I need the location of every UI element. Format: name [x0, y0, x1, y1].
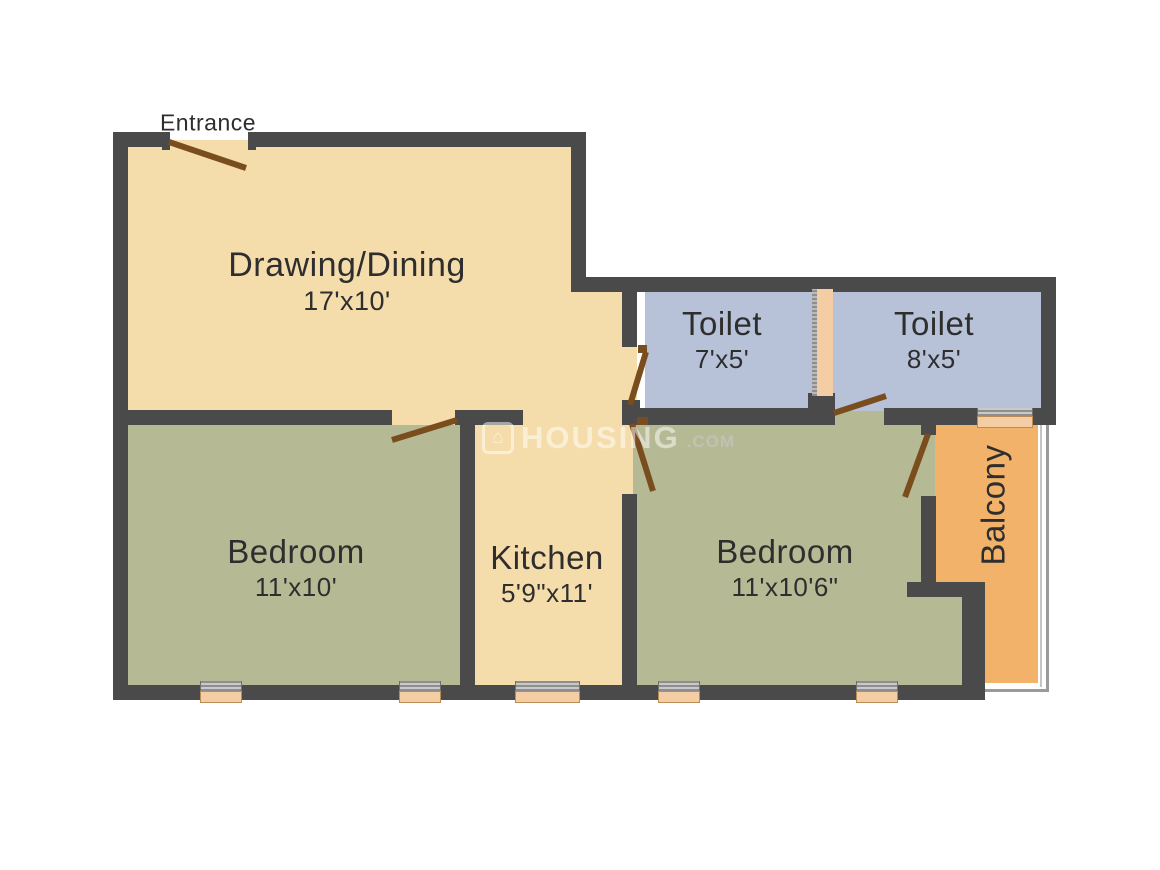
bedroom-2-label: Bedroom 11'x10'6" — [716, 534, 853, 602]
toilet-1-dimensions: 7'x5' — [682, 345, 762, 374]
toilet-2-label: Toilet 8'x5' — [894, 306, 974, 374]
toilet-2-name: Toilet — [894, 306, 974, 343]
kitchen-name: Kitchen — [490, 540, 604, 577]
bedroom-2-door-swing — [632, 424, 653, 491]
toilet-2-dimensions: 8'x5' — [894, 345, 974, 374]
kitchen-label: Kitchen 5'9"x11' — [490, 540, 604, 608]
toilet-1-door-swing — [630, 352, 646, 405]
kitchen-dimensions: 5'9"x11' — [490, 579, 604, 608]
entrance-door-swing — [169, 142, 246, 168]
bedroom-1-name: Bedroom — [227, 534, 364, 571]
bedroom-1-door-swing — [392, 420, 457, 440]
bedroom-2-dimensions: 11'x10'6" — [716, 573, 853, 602]
toilet-2-door-swing — [834, 396, 886, 413]
balcony-door-swing — [905, 434, 928, 497]
drawing-dining-name: Drawing/Dining — [228, 246, 466, 284]
balcony-name: Balcony — [976, 445, 1013, 566]
bedroom-2-name: Bedroom — [716, 534, 853, 571]
drawing-dining-label: Drawing/Dining 17'x10' — [228, 246, 466, 316]
toilet-1-name: Toilet — [682, 306, 762, 343]
floor-plan-canvas: ⌂ HOUSING .COM Entrance Drawing/Dining 1… — [0, 0, 1160, 870]
drawing-dining-dimensions: 17'x10' — [228, 286, 466, 316]
balcony-label: Balcony — [976, 445, 1013, 566]
toilet-1-label: Toilet 7'x5' — [682, 306, 762, 374]
entrance-label: Entrance — [160, 110, 256, 137]
bedroom-1-label: Bedroom 11'x10' — [227, 534, 364, 602]
bedroom-1-dimensions: 11'x10' — [227, 573, 364, 602]
